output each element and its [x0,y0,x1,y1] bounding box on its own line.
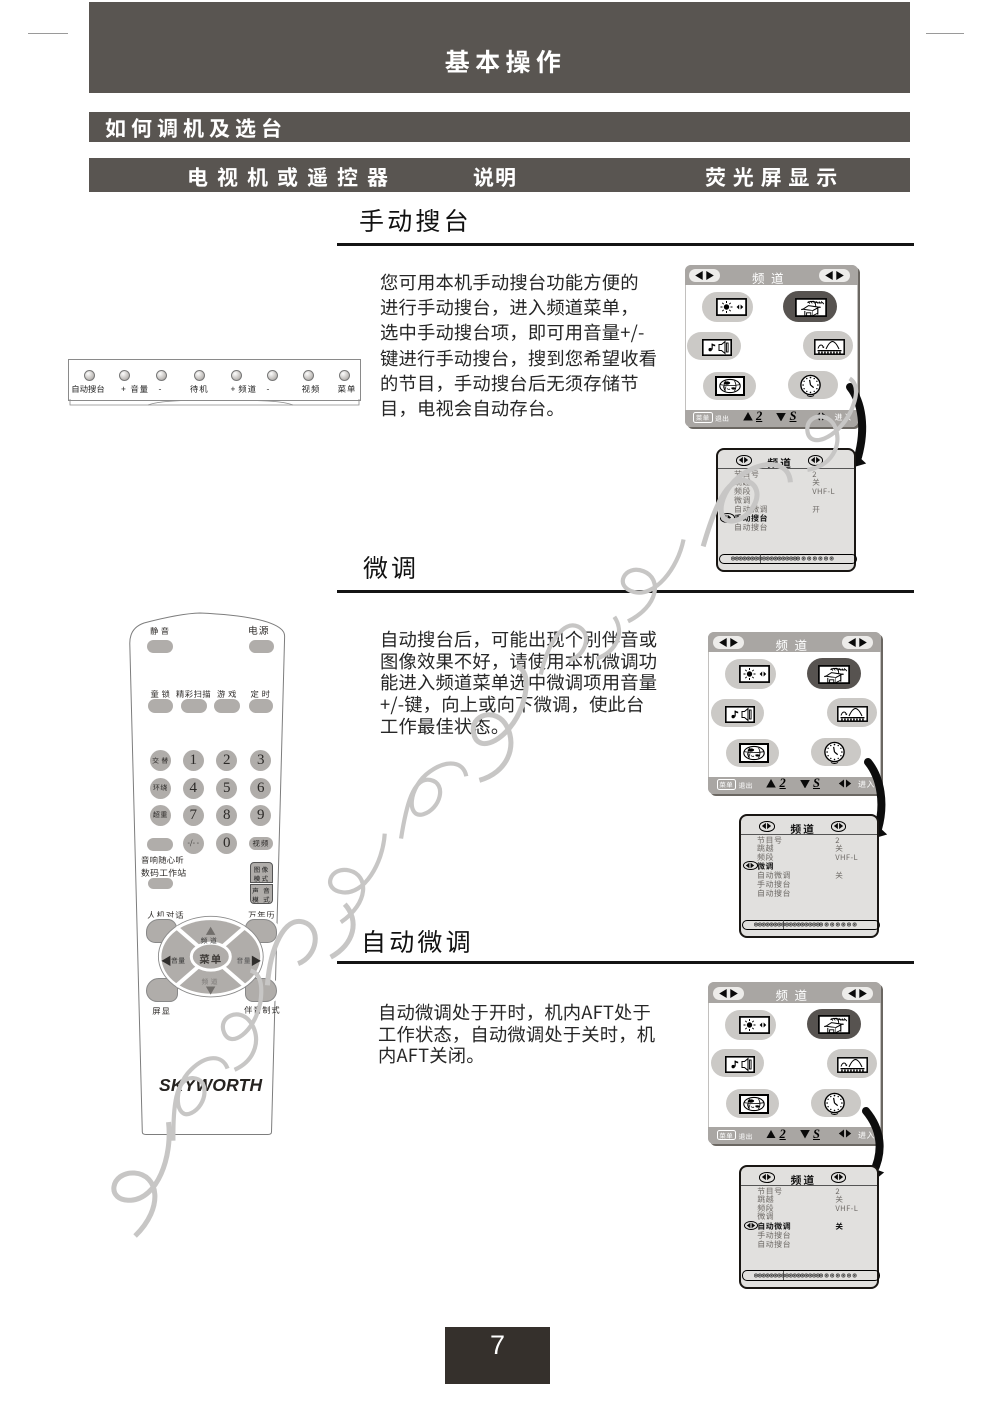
svg-text:V: V [746,1102,751,1110]
svg-text:V: V [746,752,751,760]
svg-text:V: V [722,385,727,393]
